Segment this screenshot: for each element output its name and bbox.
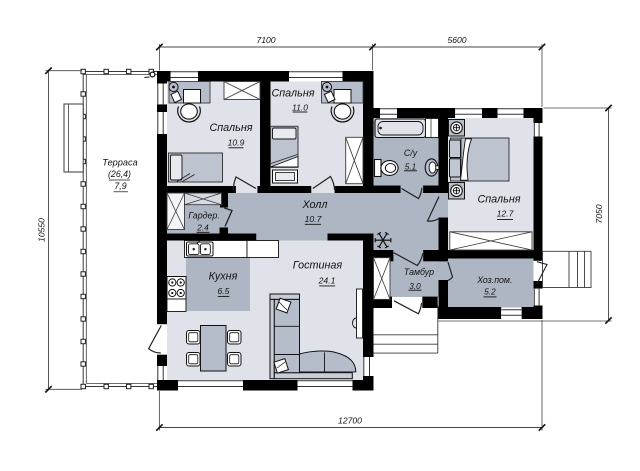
svg-text:7100: 7100: [256, 35, 275, 45]
svg-text:7,9: 7,9: [114, 181, 126, 191]
svg-text:Тамбур: Тамбур: [404, 267, 434, 277]
svg-text:7050: 7050: [594, 204, 604, 223]
svg-text:Терраса: Терраса: [102, 158, 137, 168]
svg-text:10.9: 10.9: [228, 138, 245, 148]
svg-text:2.4: 2.4: [196, 224, 209, 233]
svg-text:11.0: 11.0: [292, 103, 308, 113]
svg-text:Спальня: Спальня: [477, 194, 520, 206]
svg-text:Хоз.пом.: Хоз.пом.: [476, 275, 512, 285]
svg-text:С/у: С/у: [404, 148, 418, 158]
svg-text:Спальня: Спальня: [209, 122, 252, 134]
svg-text:Гардер.: Гардер.: [188, 211, 219, 221]
svg-text:Холл: Холл: [302, 199, 328, 211]
svg-text:5.2: 5.2: [484, 288, 496, 297]
svg-text:10.7: 10.7: [305, 214, 323, 224]
svg-text:6.5: 6.5: [218, 286, 230, 296]
svg-text:Спальня: Спальня: [271, 88, 314, 100]
svg-text:24.1: 24.1: [318, 275, 336, 285]
svg-text:3.0: 3.0: [409, 282, 421, 291]
svg-text:(26,4): (26,4): [108, 169, 131, 179]
svg-text:10550: 10550: [37, 218, 47, 242]
svg-text:12700: 12700: [338, 416, 362, 426]
svg-text:5600: 5600: [447, 35, 466, 45]
svg-text:5.1: 5.1: [405, 163, 416, 172]
svg-text:Гостиная: Гостиная: [293, 260, 343, 272]
svg-text:Кухня: Кухня: [209, 271, 238, 283]
svg-text:12.7: 12.7: [497, 209, 515, 219]
